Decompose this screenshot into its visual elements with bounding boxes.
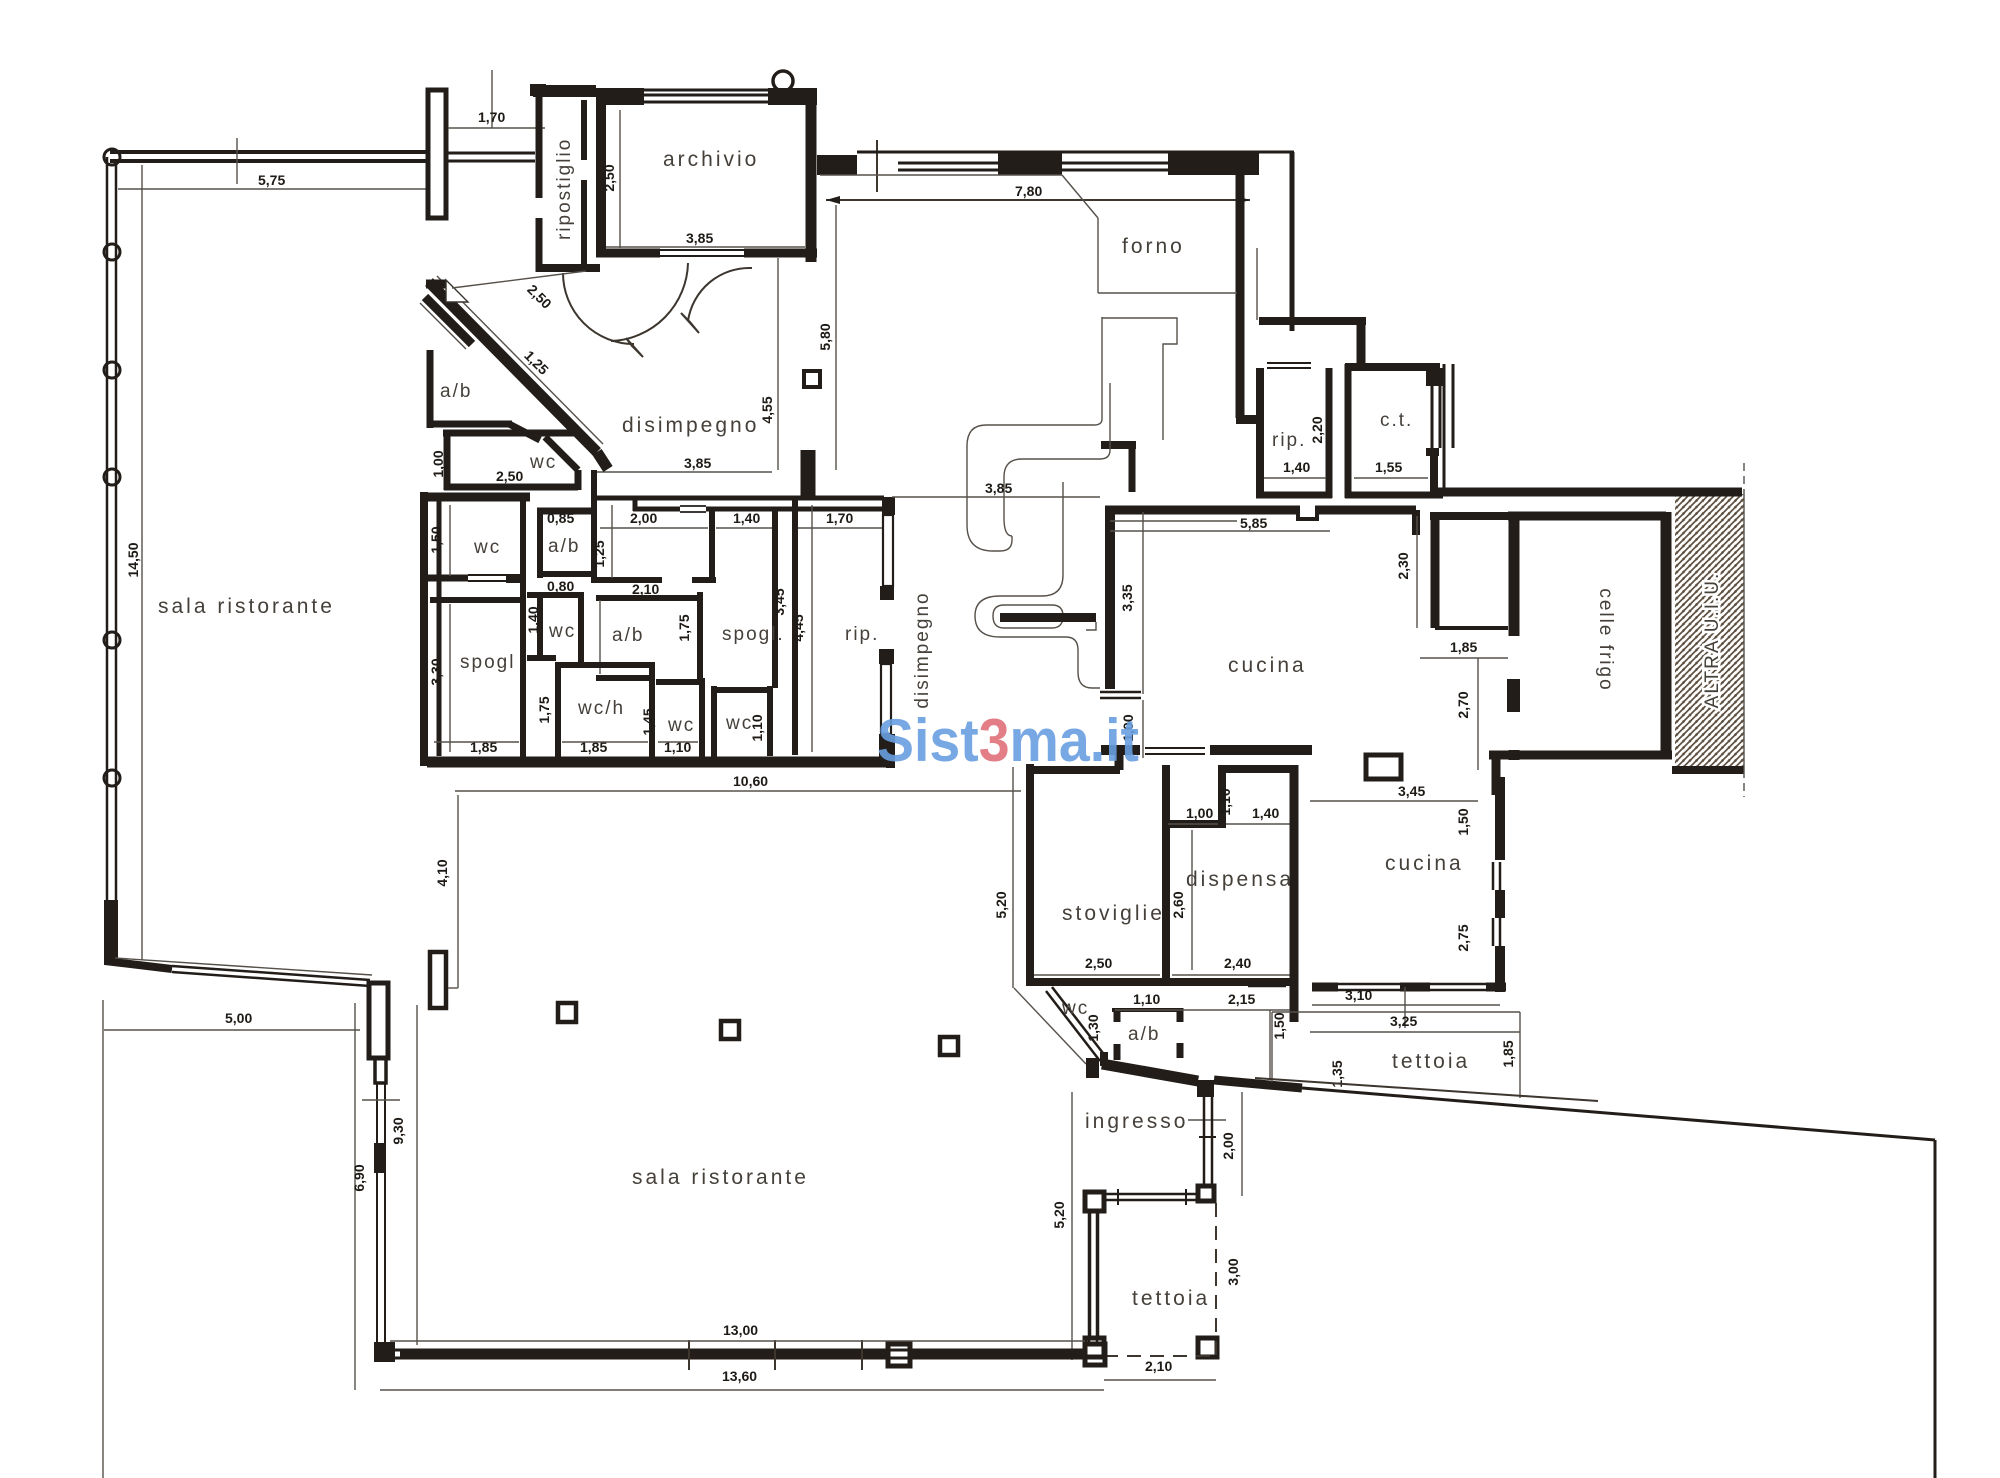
svg-text:1,50: 1,50 [1271,1012,1287,1039]
svg-text:1,00: 1,00 [1186,805,1213,821]
svg-text:4,45: 4,45 [790,614,806,641]
svg-text:1,75: 1,75 [676,614,692,641]
svg-text:3,85: 3,85 [686,230,713,246]
svg-text:1,10: 1,10 [1133,991,1160,1007]
svg-text:3,30: 3,30 [428,658,444,685]
svg-text:tettoia: tettoia [1132,1287,1210,1310]
svg-text:rip.: rip. [1272,430,1306,451]
svg-text:tettoia: tettoia [1392,1050,1470,1073]
svg-text:a/b: a/b [548,536,580,557]
svg-text:Sist3ma.it: Sist3ma.it [877,707,1139,774]
svg-text:a/b: a/b [440,381,472,402]
svg-text:2,50: 2,50 [601,164,617,191]
svg-text:spogl.: spogl. [722,624,785,645]
svg-text:disimpegno: disimpegno [622,414,759,437]
svg-text:5,75: 5,75 [258,172,285,188]
svg-text:5,85: 5,85 [1240,515,1267,531]
svg-text:9,30: 9,30 [390,1117,406,1144]
svg-text:1,85: 1,85 [1450,639,1477,655]
svg-text:7,80: 7,80 [1015,183,1042,199]
svg-text:2,00: 2,00 [1220,1132,1236,1159]
svg-text:2,75: 2,75 [1455,924,1471,951]
svg-text:stoviglie: stoviglie [1062,902,1165,925]
svg-text:1,25: 1,25 [591,540,607,567]
svg-text:14,50: 14,50 [125,542,141,577]
svg-text:1,70: 1,70 [478,109,505,125]
svg-text:wc: wc [529,452,557,473]
svg-text:13,60: 13,60 [722,1368,757,1384]
svg-text:1,75: 1,75 [536,696,552,723]
svg-text:5,00: 5,00 [225,1010,252,1026]
svg-text:2,00: 2,00 [630,510,657,526]
svg-text:5,20: 5,20 [993,891,1009,918]
svg-text:wc/h: wc/h [577,698,625,719]
svg-text:1,45: 1,45 [640,708,656,735]
svg-text:wc: wc [548,621,576,642]
svg-text:1,55: 1,55 [1375,459,1402,475]
svg-text:celle frigo: celle frigo [1595,588,1616,691]
svg-text:c.t.: c.t. [1380,410,1413,431]
svg-text:2,40: 2,40 [1224,955,1251,971]
svg-text:3,25: 3,25 [1390,1013,1417,1029]
svg-text:1,30: 1,30 [1085,1014,1101,1041]
svg-text:1,70: 1,70 [826,510,853,526]
svg-text:13,00: 13,00 [723,1322,758,1338]
svg-text:2,15: 2,15 [1228,991,1255,1007]
svg-text:1,10: 1,10 [749,714,765,741]
svg-text:3,00: 3,00 [1225,1258,1241,1285]
svg-text:1,85: 1,85 [1500,1040,1516,1067]
svg-text:cucina: cucina [1228,654,1307,677]
svg-text:2,70: 2,70 [1455,691,1471,718]
svg-text:0,80: 0,80 [547,578,574,594]
svg-text:archivio: archivio [663,148,759,171]
svg-text:wc: wc [473,537,501,558]
svg-text:1,40: 1,40 [733,510,760,526]
svg-text:1,40: 1,40 [1283,459,1310,475]
svg-text:wc: wc [667,715,695,736]
svg-text:3,10: 3,10 [1345,987,1372,1003]
svg-text:2,50: 2,50 [496,468,523,484]
svg-text:1,10: 1,10 [1217,788,1233,815]
svg-text:3,35: 3,35 [1119,584,1135,611]
svg-text:cucina: cucina [1385,852,1464,875]
svg-text:rip.: rip. [845,624,879,645]
svg-text:10,60: 10,60 [733,773,768,789]
svg-text:3,85: 3,85 [684,455,711,471]
svg-text:5,80: 5,80 [817,323,833,350]
svg-text:1,40: 1,40 [1252,805,1279,821]
svg-text:sala ristorante: sala ristorante [632,1166,809,1189]
svg-text:a/b: a/b [612,625,644,646]
svg-text:ripostiglio: ripostiglio [554,138,575,240]
svg-text:sala ristorante: sala ristorante [158,595,335,618]
svg-text:2,10: 2,10 [632,581,659,597]
svg-text:2,20: 2,20 [1309,416,1325,443]
svg-text:4,10: 4,10 [434,859,450,886]
svg-text:2,60: 2,60 [1170,891,1186,918]
svg-text:3,45: 3,45 [771,588,787,615]
svg-text:1,00: 1,00 [430,450,446,477]
svg-text:disimpegno: disimpegno [912,591,933,708]
svg-text:2,10: 2,10 [1145,1358,1172,1374]
svg-text:1,50: 1,50 [428,526,444,553]
svg-text:4,55: 4,55 [759,396,775,423]
svg-text:ALTRA U.I.U.: ALTRA U.I.U. [1702,572,1723,709]
svg-text:5,20: 5,20 [1051,1201,1067,1228]
svg-text:3,45: 3,45 [1398,783,1425,799]
svg-text:1,40: 1,40 [525,606,541,633]
svg-text:2,50: 2,50 [1085,955,1112,971]
svg-text:3,85: 3,85 [985,480,1012,496]
svg-text:0,85: 0,85 [547,510,574,526]
svg-text:6,90: 6,90 [351,1164,367,1191]
svg-text:ingresso: ingresso [1085,1110,1188,1133]
svg-text:1,50: 1,50 [1455,808,1471,835]
svg-text:spogl: spogl [460,652,515,673]
svg-text:2,30: 2,30 [1395,552,1411,579]
svg-text:a/b: a/b [1128,1024,1160,1045]
svg-text:dispensa: dispensa [1186,868,1294,891]
svg-text:forno: forno [1122,235,1185,258]
